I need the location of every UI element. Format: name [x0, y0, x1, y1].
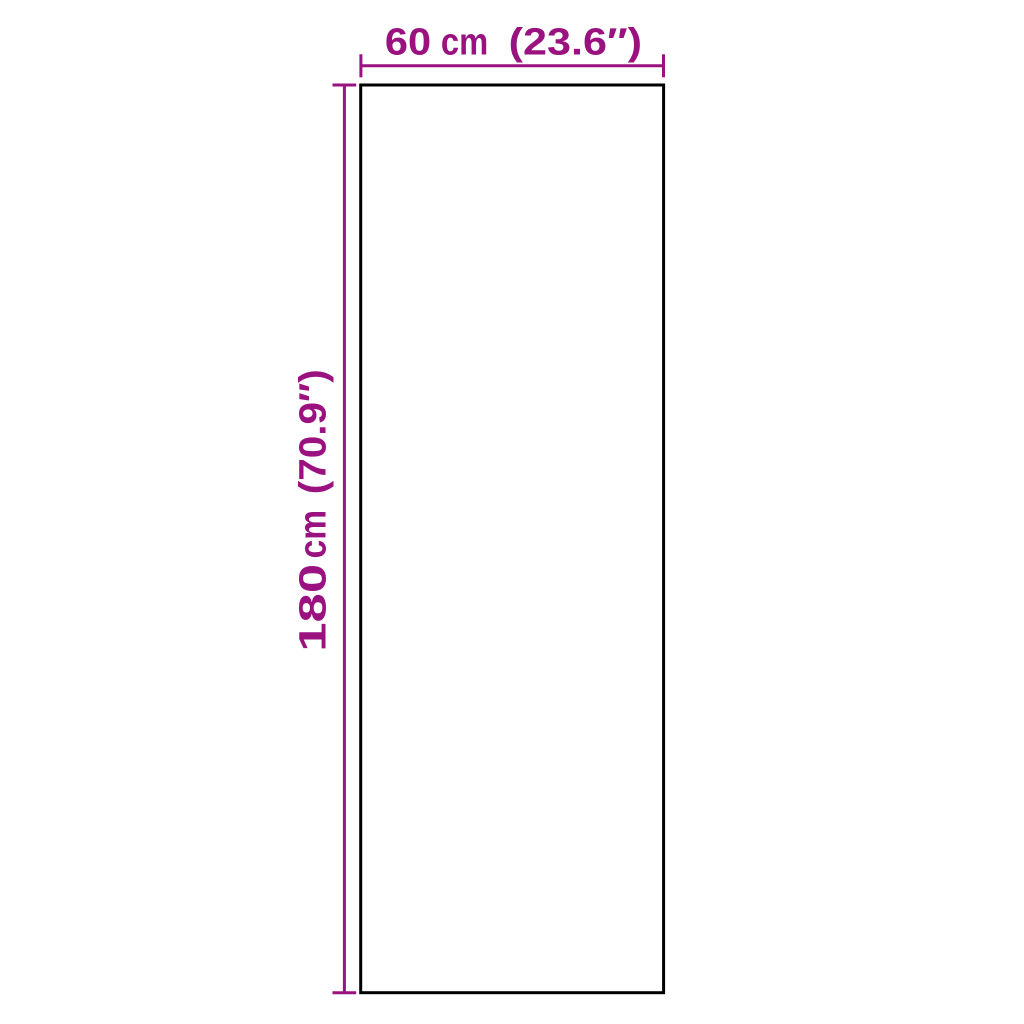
svg-text:60: 60	[385, 20, 431, 63]
svg-text:(70.9″): (70.9″)	[292, 369, 335, 494]
svg-text:180: 180	[292, 564, 335, 652]
svg-text:(23.6″): (23.6″)	[509, 20, 642, 63]
svg-text:cm: cm	[292, 510, 335, 558]
svg-text:cm: cm	[441, 20, 488, 63]
